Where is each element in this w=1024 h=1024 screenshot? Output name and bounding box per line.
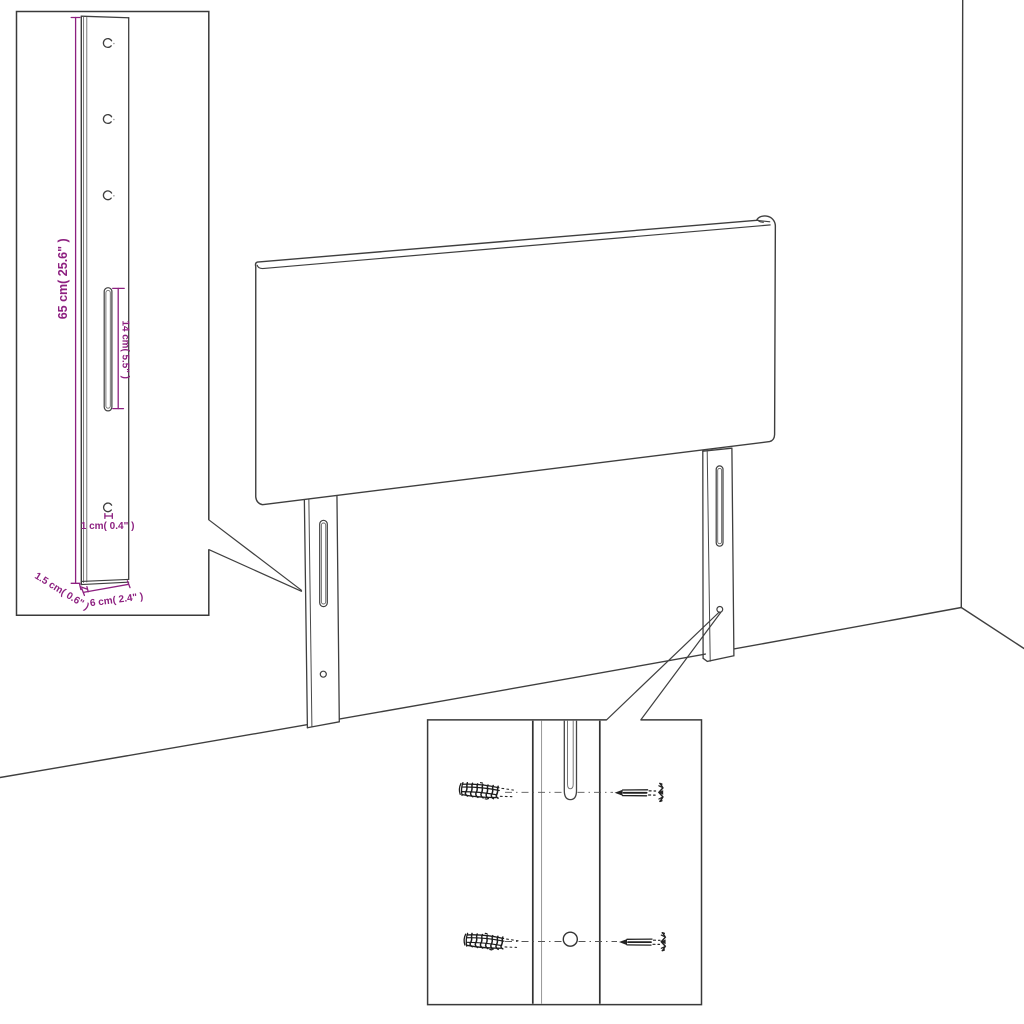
svg-text:65 cm( 25.6" ): 65 cm( 25.6" )	[56, 238, 70, 319]
svg-text:1 cm( 0.4" ): 1 cm( 0.4" )	[81, 521, 135, 532]
svg-text:14 cm( 5.5" ): 14 cm( 5.5" )	[119, 320, 130, 378]
